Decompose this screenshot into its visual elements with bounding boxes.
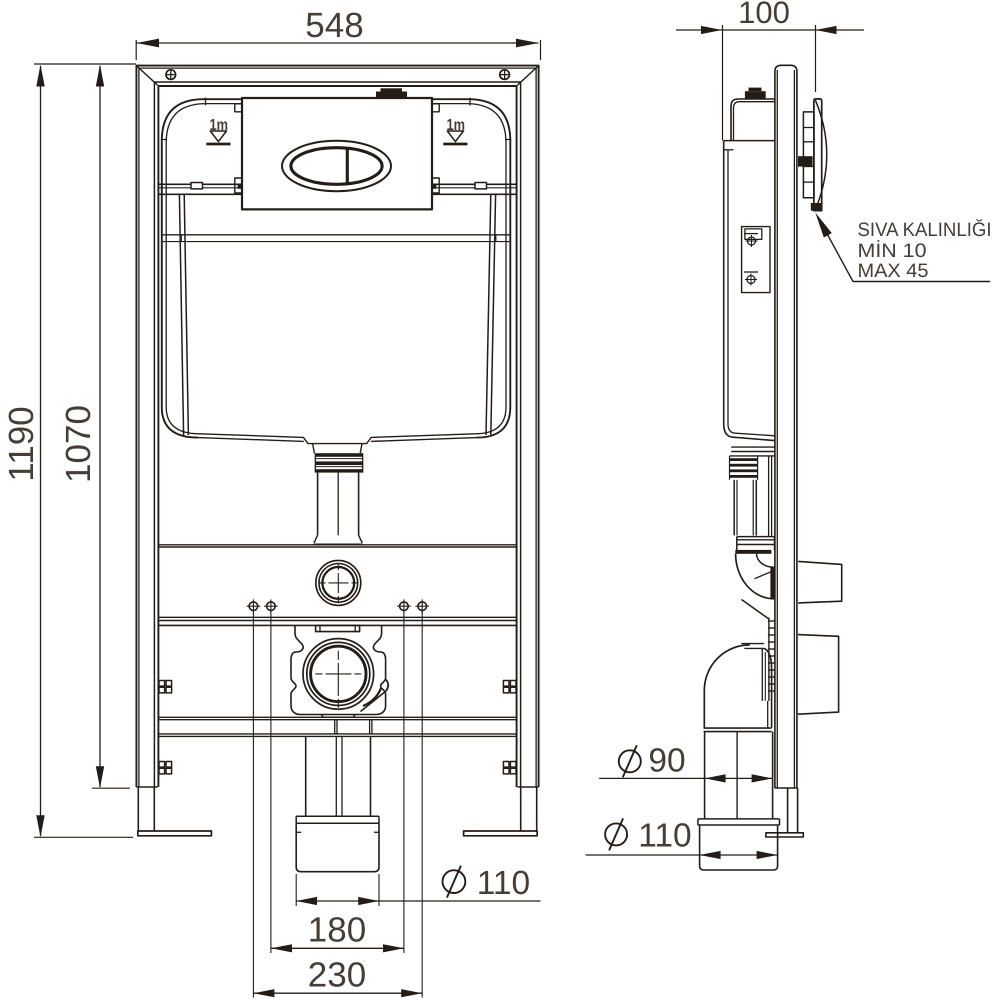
svg-text:1070: 1070 — [59, 405, 98, 483]
svg-text:1190: 1190 — [2, 406, 41, 481]
svg-text:230: 230 — [308, 956, 366, 995]
svg-text:110: 110 — [477, 865, 530, 902]
svg-text:90: 90 — [648, 743, 685, 780]
svg-text:180: 180 — [308, 911, 366, 950]
svg-text:110: 110 — [638, 818, 691, 855]
svg-text:SIVA KALINLIĞI: SIVA KALINLIĞI — [858, 219, 992, 241]
svg-text:548: 548 — [305, 6, 363, 45]
svg-text:MAX 45: MAX 45 — [858, 260, 929, 282]
svg-text:100: 100 — [738, 0, 790, 30]
svg-text:MİN 10: MİN 10 — [858, 240, 927, 262]
